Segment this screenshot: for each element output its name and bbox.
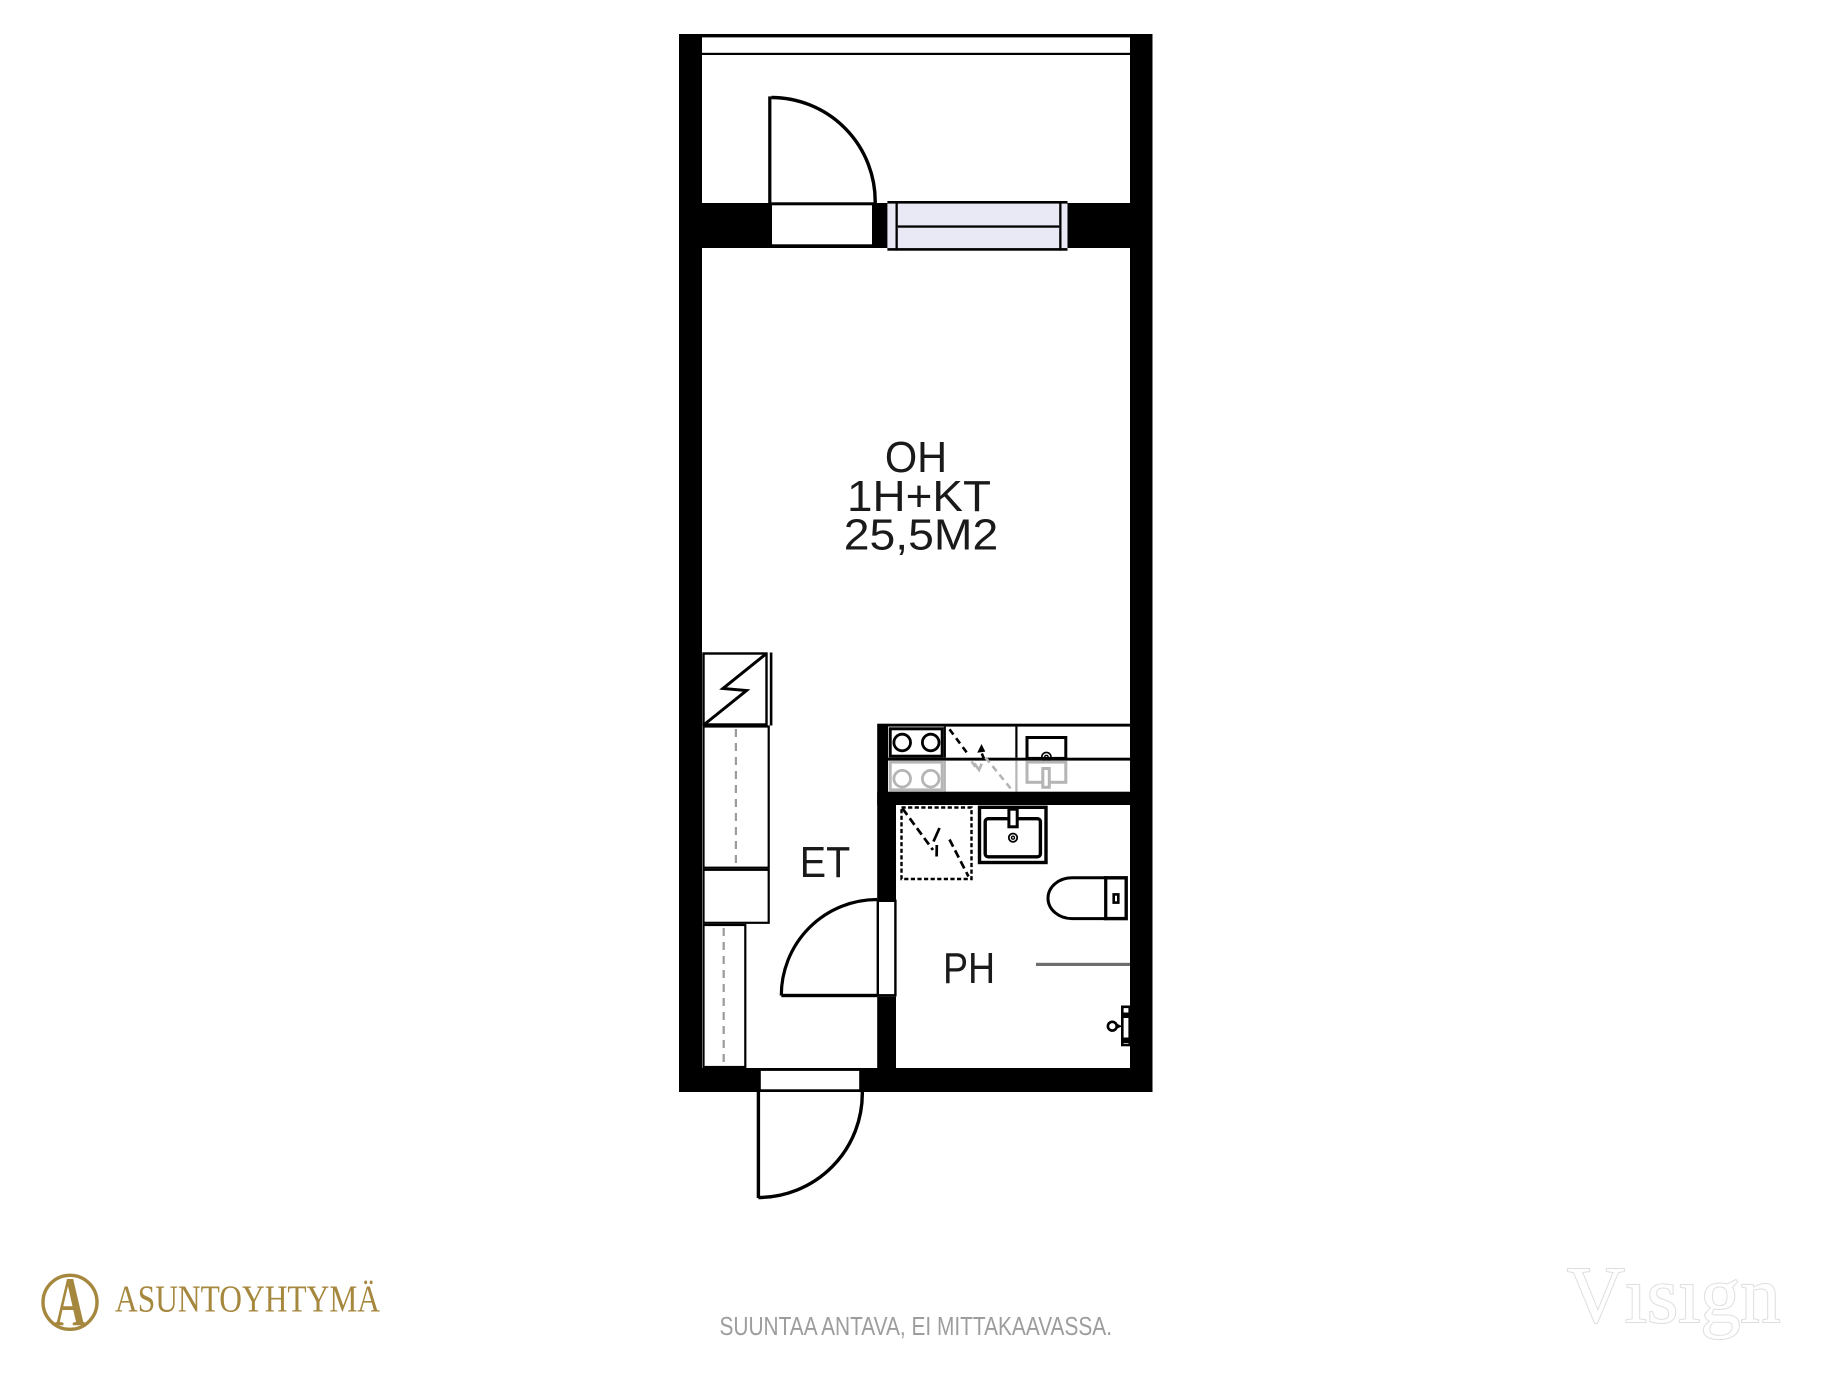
svg-text:ET: ET	[800, 838, 850, 887]
svg-text:Vısıgn: Vısıgn	[1567, 1252, 1780, 1340]
svg-text:A: A	[54, 1263, 85, 1341]
svg-text:PH: PH	[943, 944, 995, 993]
svg-text:ASUNTOYHTYMÄ: ASUNTOYHTYMÄ	[115, 1279, 380, 1321]
svg-text:25,5M2: 25,5M2	[844, 511, 999, 560]
svg-text:SUUNTAA ANTAVA, EI MITTAKAAVAS: SUUNTAA ANTAVA, EI MITTAKAAVASSA.	[720, 1311, 1113, 1341]
